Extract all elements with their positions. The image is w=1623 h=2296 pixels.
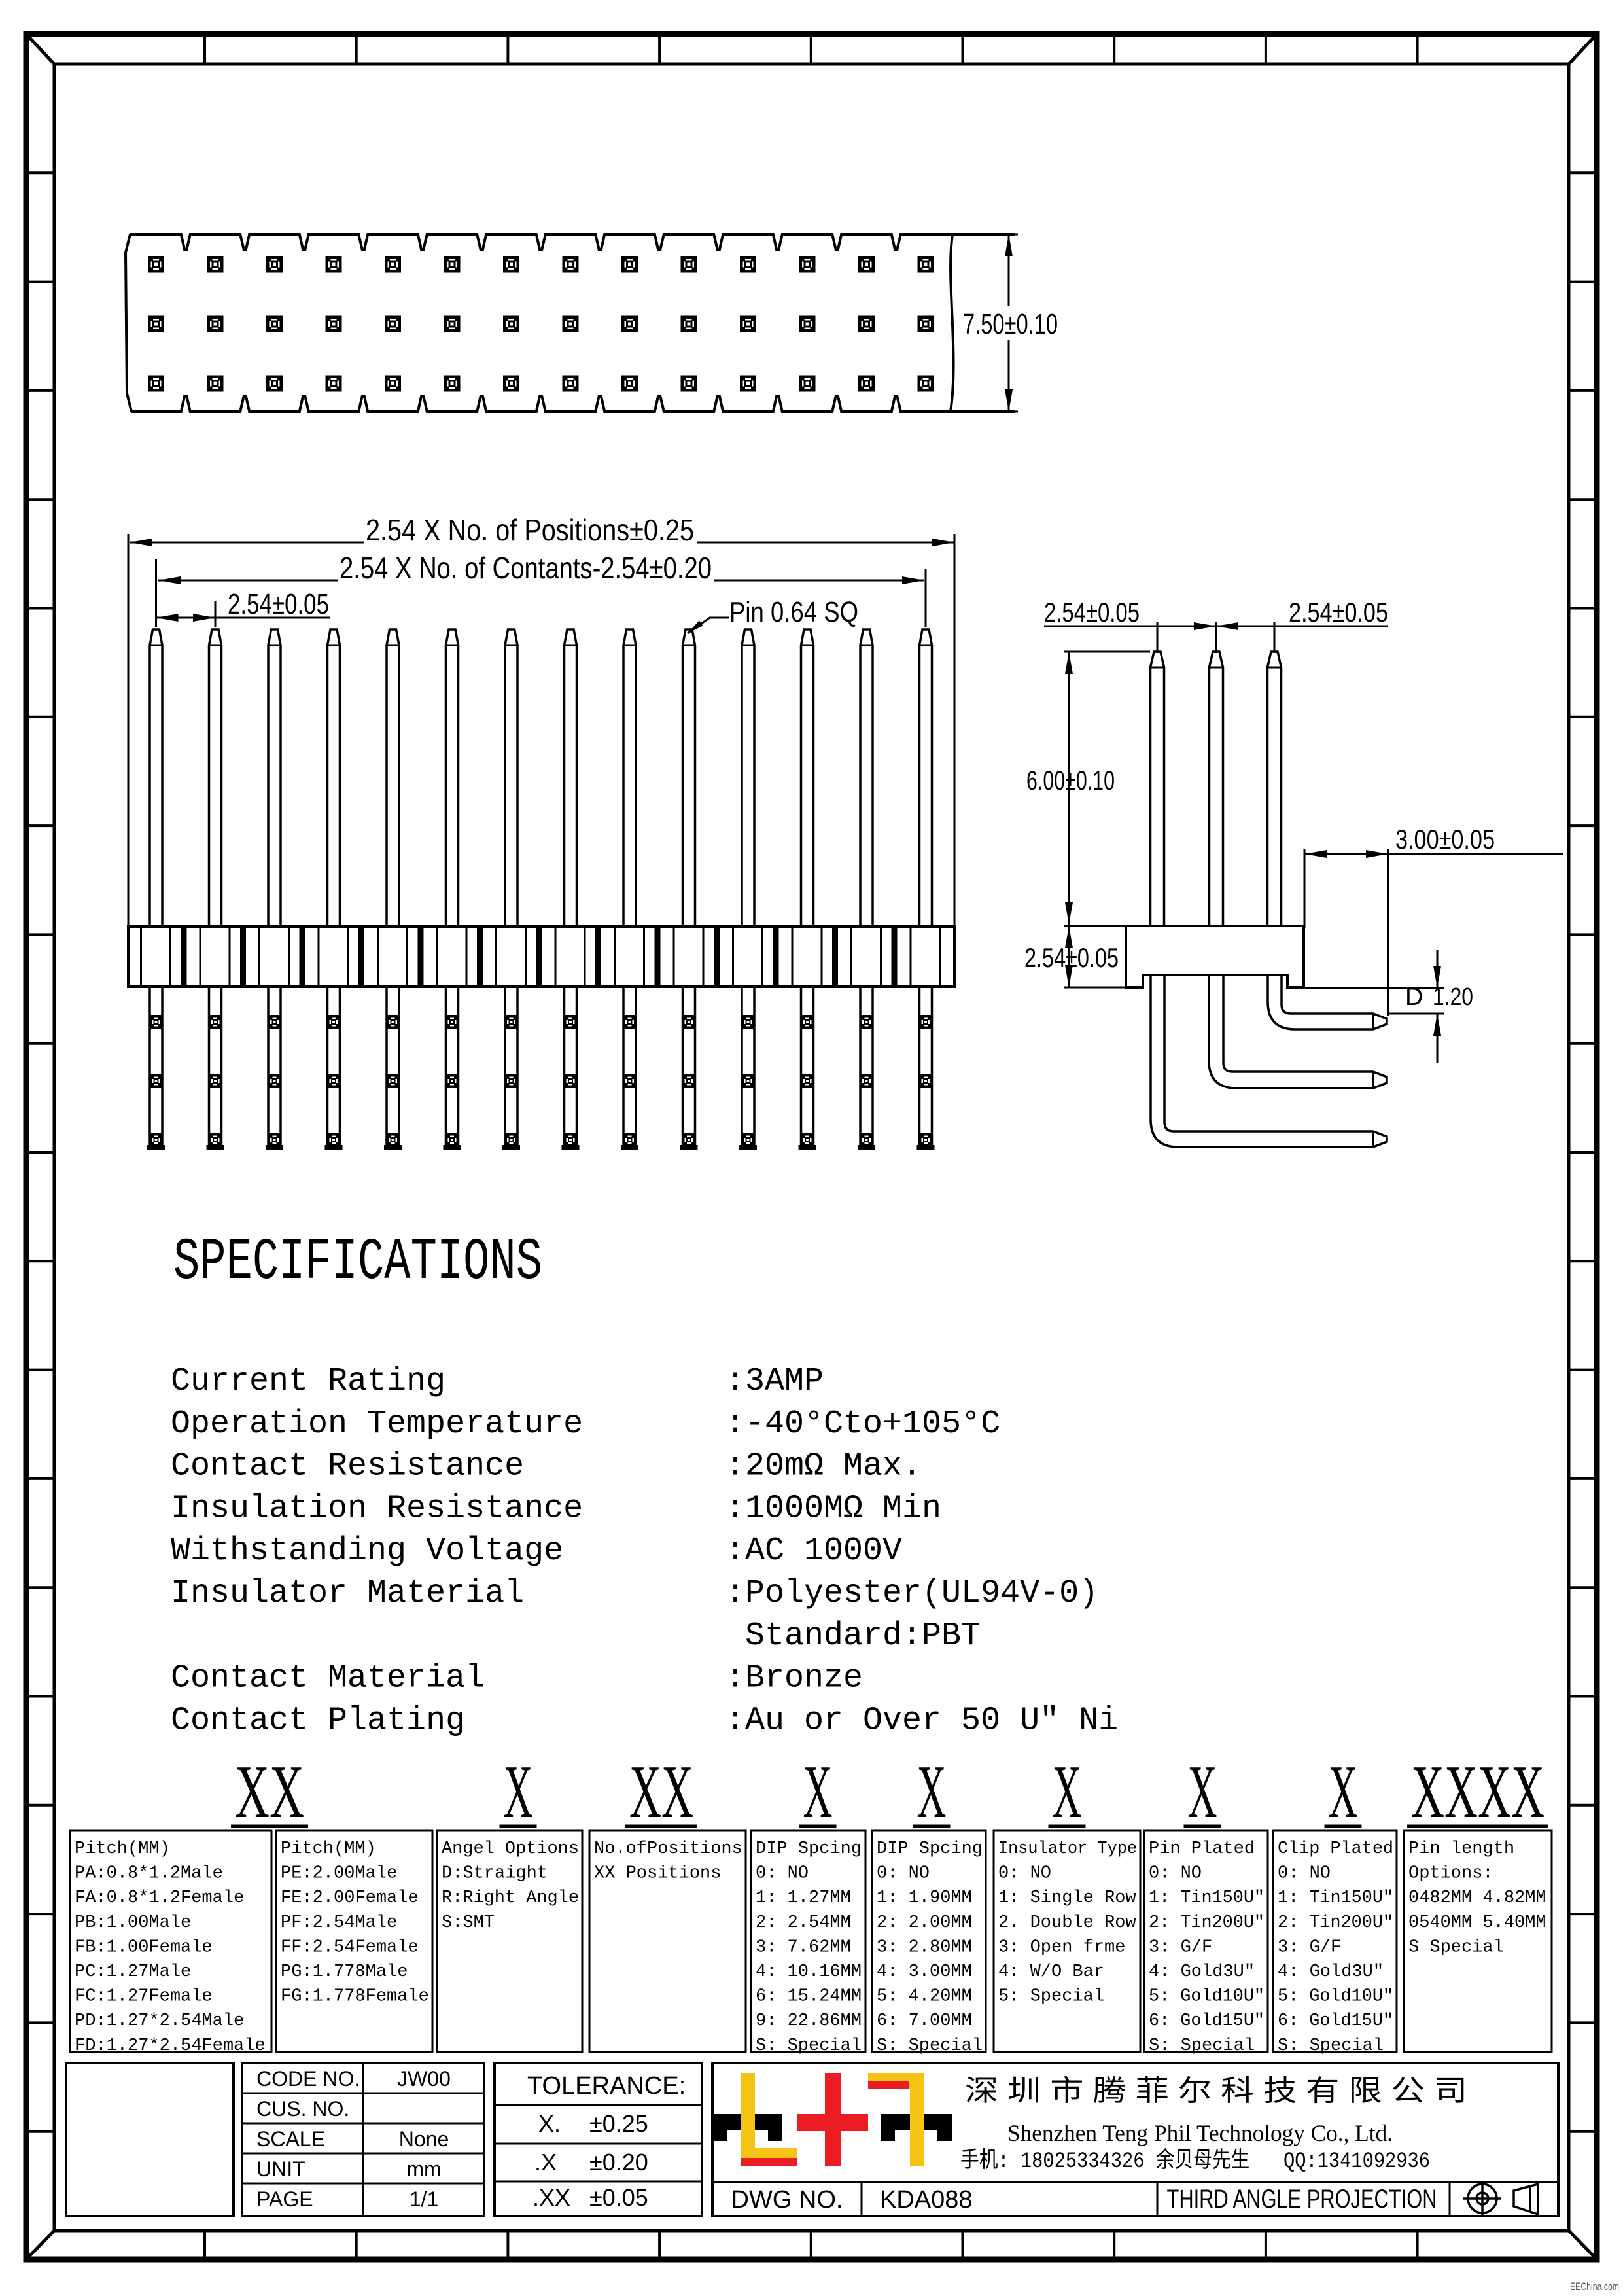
svg-text:XXXX: XXXX (1411, 1750, 1544, 1833)
svg-text:4: Gold3U": 4: Gold3U" (1149, 1962, 1255, 1982)
svg-text:EEChina.com: EEChina.com (1570, 2280, 1619, 2293)
svg-text:Pitch(MM): Pitch(MM) (75, 1839, 170, 1859)
svg-text:XX Positions: XX Positions (594, 1864, 721, 1884)
svg-text:0: NO: 0: NO (1149, 1864, 1202, 1884)
svg-text:6: 7.00MM: 6: 7.00MM (877, 2011, 972, 2031)
svg-text:X: X (803, 1750, 833, 1833)
svg-text:THIRD ANGLE PROJECTION: THIRD ANGLE PROJECTION (1167, 2185, 1437, 2214)
svg-text:5: Gold10U": 5: Gold10U" (1149, 1987, 1265, 2007)
svg-text:None: None (399, 2127, 449, 2151)
svg-text:PA:0.8*1.2Male: PA:0.8*1.2Male (75, 1864, 223, 1884)
svg-text::-40°Cto+105°C: :-40°Cto+105°C (725, 1405, 1000, 1443)
svg-text:X: X (1188, 1750, 1217, 1833)
svg-text:X: X (1053, 1750, 1082, 1833)
svg-text:PC:1.27Male: PC:1.27Male (75, 1962, 191, 1982)
svg-text:±0.20: ±0.20 (589, 2149, 648, 2176)
svg-text:XX: XX (629, 1750, 693, 1833)
svg-text:PG:1.778Male: PG:1.778Male (281, 1962, 408, 1982)
svg-text:0540MM 5.40MM: 0540MM 5.40MM (1408, 1913, 1546, 1933)
svg-text:FA:0.8*1.2Female: FA:0.8*1.2Female (75, 1888, 244, 1908)
svg-text:6: 15.24MM: 6: 15.24MM (756, 1987, 862, 2007)
svg-text:Angel Options: Angel Options (442, 1839, 579, 1859)
svg-text:0: NO: 0: NO (756, 1864, 809, 1884)
svg-text:KDA088: KDA088 (880, 2186, 973, 2214)
svg-text:Operation Temperature: Operation Temperature (171, 1405, 583, 1443)
svg-text:1: 1.27MM: 1: 1.27MM (756, 1888, 851, 1908)
svg-text:S: Special: S: Special (877, 2036, 983, 2056)
svg-text:3: 7.62MM: 3: 7.62MM (756, 1937, 851, 1957)
svg-text::1000MΩ Min: :1000MΩ Min (725, 1490, 941, 1527)
svg-text:DIP Spcing: DIP Spcing (756, 1839, 862, 1859)
svg-text:±0.25: ±0.25 (589, 2110, 648, 2137)
svg-text:1.20: 1.20 (1433, 983, 1473, 1011)
svg-text:2.54±0.05: 2.54±0.05 (1289, 597, 1388, 627)
svg-text:2.54 X No. of Positions±0.25: 2.54 X No. of Positions±0.25 (366, 513, 694, 547)
svg-text:JW00: JW00 (397, 2067, 451, 2091)
svg-text:Withstanding Voltage: Withstanding Voltage (171, 1532, 563, 1570)
svg-text::20mΩ Max.: :20mΩ Max. (725, 1448, 922, 1485)
svg-text:4: 10.16MM: 4: 10.16MM (756, 1962, 862, 1982)
svg-text:5: Gold10U": 5: Gold10U" (1278, 1987, 1393, 2007)
svg-text:0482MM 4.82MM: 0482MM 4.82MM (1408, 1888, 1546, 1908)
svg-text:Current Rating: Current Rating (171, 1363, 445, 1400)
svg-text:Insulator Material: Insulator Material (171, 1575, 524, 1612)
svg-text:S Special: S Special (1408, 1937, 1504, 1957)
svg-text:FB:1.00Female: FB:1.00Female (75, 1937, 213, 1957)
svg-text:1/1: 1/1 (410, 2187, 438, 2211)
svg-text:TOLERANCE:: TOLERANCE: (527, 2072, 686, 2100)
svg-text:2.54±0.05: 2.54±0.05 (1044, 597, 1140, 627)
svg-text:3: 2.80MM: 3: 2.80MM (877, 1937, 972, 1957)
svg-text:Pin length: Pin length (1408, 1839, 1514, 1859)
svg-text:.X: .X (534, 2149, 557, 2176)
svg-text:手机: 18025334326 余贝母先生 QQ:134: 手机: 18025334326 余贝母先生 QQ:1341092936 (960, 2147, 1430, 2174)
svg-text:X: X (504, 1750, 533, 1833)
svg-text:3: G/F: 3: G/F (1278, 1937, 1341, 1957)
svg-text:0: NO: 0: NO (998, 1864, 1051, 1884)
svg-text:PE:2.00Male: PE:2.00Male (281, 1864, 397, 1884)
svg-text:D:Straight: D:Straight (442, 1864, 548, 1884)
svg-text:5: 4.20MM: 5: 4.20MM (877, 1987, 972, 2007)
svg-text:S:SMT: S:SMT (442, 1913, 495, 1933)
svg-text:2: Tin200U": 2: Tin200U" (1149, 1913, 1265, 1933)
svg-text:S: Special: S: Special (1149, 2036, 1255, 2056)
svg-text:6.00±0.10: 6.00±0.10 (1026, 765, 1115, 796)
svg-text:Pin Plated: Pin Plated (1149, 1839, 1255, 1859)
svg-text:UNIT: UNIT (256, 2157, 305, 2181)
svg-text:CODE NO.: CODE NO. (256, 2067, 360, 2091)
svg-text:D: D (1405, 983, 1423, 1011)
svg-text:Insulator Type: Insulator Type (998, 1839, 1137, 1859)
svg-text:Contact Material: Contact Material (171, 1660, 485, 1697)
svg-text:X: X (917, 1750, 947, 1833)
svg-text:Options:: Options: (1408, 1864, 1493, 1884)
svg-text:S: Special: S: Special (756, 2036, 862, 2056)
svg-text:5: Special: 5: Special (998, 1987, 1104, 2007)
svg-text::Polyester(UL94V-0): :Polyester(UL94V-0) (725, 1575, 1098, 1612)
svg-text:.XX: .XX (532, 2184, 570, 2211)
svg-text:4: Gold3U": 4: Gold3U" (1278, 1962, 1384, 1982)
svg-text:1: 1.90MM: 1: 1.90MM (877, 1888, 972, 1908)
svg-text:X: X (1329, 1750, 1358, 1833)
svg-text:2.54±0.05: 2.54±0.05 (1024, 942, 1119, 973)
svg-text:Contact Resistance: Contact Resistance (171, 1448, 524, 1485)
svg-text:1: Single Row: 1: Single Row (998, 1888, 1136, 1908)
svg-text:2. Double Row: 2. Double Row (998, 1913, 1136, 1933)
svg-text:9: 22.86MM: 9: 22.86MM (756, 2011, 862, 2031)
svg-text:PD:1.27*2.54Male: PD:1.27*2.54Male (75, 2011, 244, 2031)
svg-text:2: Tin200U": 2: Tin200U" (1278, 1913, 1393, 1933)
svg-text:0: NO: 0: NO (877, 1864, 930, 1884)
svg-text:No.ofPositions: No.ofPositions (594, 1839, 742, 1859)
svg-text:1: Tin150U": 1: Tin150U" (1149, 1888, 1265, 1908)
svg-text:2.54±0.05: 2.54±0.05 (228, 588, 329, 620)
svg-text:CUS. NO.: CUS. NO. (256, 2097, 349, 2121)
svg-text:FC:1.27Female: FC:1.27Female (75, 1987, 213, 2007)
svg-text:FF:2.54Female: FF:2.54Female (281, 1937, 419, 1957)
svg-text:3.00±0.05: 3.00±0.05 (1395, 824, 1495, 855)
svg-text:2: 2.00MM: 2: 2.00MM (877, 1913, 972, 1933)
svg-text:Standard:PBT: Standard:PBT (725, 1617, 981, 1655)
svg-text:DWG NO.: DWG NO. (731, 2186, 843, 2214)
svg-text:XX: XX (235, 1750, 304, 1833)
svg-text:R:Right Angle: R:Right Angle (442, 1888, 579, 1908)
svg-text:PF:2.54Male: PF:2.54Male (281, 1913, 397, 1933)
svg-text:7.50±0.10: 7.50±0.10 (963, 308, 1058, 340)
svg-text:Pin 0.64 SQ: Pin 0.64 SQ (729, 596, 858, 628)
svg-text:1: Tin150U": 1: Tin150U" (1278, 1888, 1393, 1908)
svg-text:6: Gold15U": 6: Gold15U" (1149, 2011, 1265, 2031)
svg-text:Shenzhen Teng Phil Technology: Shenzhen Teng Phil Technology Co., Ltd. (1007, 2120, 1393, 2146)
svg-text:X.: X. (538, 2110, 561, 2137)
svg-text::3AMP: :3AMP (725, 1363, 824, 1400)
svg-text:PB:1.00Male: PB:1.00Male (75, 1913, 191, 1933)
svg-text:3: Open frme: 3: Open frme (998, 1937, 1125, 1957)
svg-text:3: G/F: 3: G/F (1149, 1937, 1212, 1957)
svg-text::AC 1000V: :AC 1000V (725, 1532, 902, 1570)
svg-text::Au or Over 50 U" Ni: :Au or Over 50 U" Ni (725, 1702, 1118, 1739)
svg-text:6: Gold15U": 6: Gold15U" (1278, 2011, 1393, 2031)
svg-text:±0.05: ±0.05 (589, 2184, 648, 2211)
svg-text:深 圳 市 腾 菲 尔 科 技 有 限 公 司: 深 圳 市 腾 菲 尔 科 技 有 限 公 司 (965, 2075, 1467, 2107)
svg-text:mm: mm (406, 2157, 441, 2181)
svg-text:0: NO: 0: NO (1278, 1864, 1331, 1884)
svg-text:4: 3.00MM: 4: 3.00MM (877, 1962, 972, 1982)
svg-text:SPECIFICATIONS: SPECIFICATIONS (173, 1229, 542, 1296)
svg-text:SCALE: SCALE (256, 2127, 325, 2151)
svg-text:2: 2.54MM: 2: 2.54MM (756, 1913, 851, 1933)
svg-text:FG:1.778Female: FG:1.778Female (281, 1987, 429, 2007)
svg-text:Pitch(MM): Pitch(MM) (281, 1839, 376, 1859)
svg-text:PAGE: PAGE (256, 2187, 313, 2211)
svg-text:DIP Spcing: DIP Spcing (877, 1839, 983, 1859)
svg-text:Insulation Resistance: Insulation Resistance (171, 1490, 583, 1527)
svg-text:FE:2.00Female: FE:2.00Female (281, 1888, 419, 1908)
svg-text:S: Special: S: Special (1278, 2036, 1384, 2056)
svg-text:FD:1.27*2.54Female: FD:1.27*2.54Female (75, 2036, 266, 2056)
svg-text:4: W/O Bar: 4: W/O Bar (998, 1962, 1104, 1982)
svg-text:2.54 X No. of Contants-2.54±0.: 2.54 X No. of Contants-2.54±0.20 (340, 551, 712, 585)
svg-text::Bronze: :Bronze (725, 1660, 863, 1697)
svg-text:Contact Plating: Contact Plating (171, 1702, 465, 1739)
svg-text:Clip Plated: Clip Plated (1278, 1839, 1393, 1859)
